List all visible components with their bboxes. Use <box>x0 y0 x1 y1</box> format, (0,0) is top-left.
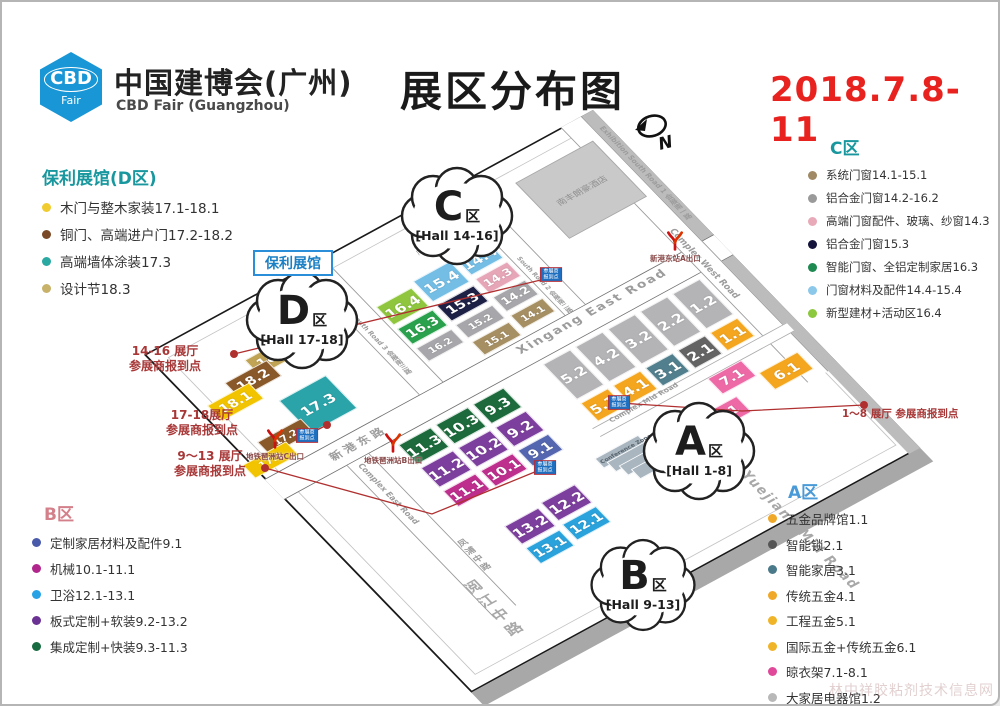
zone-cloud-b: B 区 [Hall 9-13] <box>585 536 701 634</box>
zone-suffix: 区 <box>312 314 327 328</box>
metro-icon <box>383 432 403 454</box>
legend-title: C区 <box>830 134 990 159</box>
zone-cloud-d: D 区 [Hall 17-18] <box>240 268 364 372</box>
legend-label: 高端门窗配件、玻璃、纱窗14.3 <box>826 213 990 229</box>
legend-dot-icon <box>768 514 777 523</box>
logo-fair-text: Fair <box>61 94 81 107</box>
legend-item: 智能门窗、全铝定制家居16.3 <box>808 259 990 275</box>
legend-item: 工程五金5.1 <box>768 611 916 630</box>
anno-line: 参展商报到点 <box>112 423 292 438</box>
zone-letter: D <box>277 293 310 329</box>
zone-suffix: 区 <box>465 210 480 224</box>
legend-item: 门窗材料及配件14.4-15.4 <box>808 282 990 298</box>
metro-exit-label: 新港东站A出口 <box>650 253 701 264</box>
metro-icon <box>665 230 685 252</box>
legend-title: A区 <box>788 478 916 503</box>
checkin-note-17-18: 17-18展厅 参展商报到点 <box>112 408 292 438</box>
legend-item: 晾衣架7.1-8.1 <box>768 662 916 681</box>
legend-label: 门窗材料及配件14.4-15.4 <box>826 282 962 298</box>
metro-exit-label: 地铁琶洲站B出口 <box>364 455 422 466</box>
legend-item: 系统门窗14.1-15.1 <box>808 167 990 183</box>
legend-item: 五金品牌馆1.1 <box>768 509 916 528</box>
legend-dot-icon <box>32 538 41 547</box>
legend-label: 智能家居3.1 <box>786 560 856 579</box>
legend-dot-icon <box>808 240 817 249</box>
legend-label: 高端墙体涂装17.3 <box>60 251 171 271</box>
anno-line: 参展商报到点 <box>90 359 240 374</box>
legend-item: 定制家居材料及配件9.1 <box>32 533 188 552</box>
legend-dot-icon <box>768 540 777 549</box>
north-compass-icon: N <box>632 112 684 158</box>
legend-dot-icon <box>32 590 41 599</box>
zone-hall-range: [Hall 14-16] <box>415 228 498 243</box>
anno-line: 参展商报到点 <box>120 464 300 479</box>
poster: CBD Fair 中国建博会(广州) CBD Fair (Guangzhou) … <box>0 0 1000 706</box>
legend-item: 机械10.1-11.1 <box>32 559 188 578</box>
legend-item: 智能家居3.1 <box>768 560 916 579</box>
legend-dot-icon <box>808 286 817 295</box>
legend-label: 机械10.1-11.1 <box>50 559 135 578</box>
legend-dot-icon <box>32 564 41 573</box>
zone-letter: C <box>434 189 463 225</box>
anno-line: 17-18展厅 <box>112 408 292 423</box>
legend-zone-c: C区 系统门窗14.1-15.1铝合金门窗14.2-16.2高端门窗配件、玻璃、… <box>808 134 990 328</box>
legend-label: 卫浴12.1-13.1 <box>50 585 135 604</box>
legend-items: 定制家居材料及配件9.1机械10.1-11.1卫浴12.1-13.1板式定制+软… <box>32 533 188 656</box>
legend-dot-icon <box>42 230 51 239</box>
badge-text: 报到点 <box>537 468 552 474</box>
poly-pavilion-badge: 保利展馆 <box>253 250 333 276</box>
legend-label: 工程五金5.1 <box>786 611 856 630</box>
legend-dot-icon <box>768 565 777 574</box>
legend-dot-icon <box>42 203 51 212</box>
legend-dot-icon <box>808 171 817 180</box>
legend-label: 铝合金门窗15.3 <box>826 236 909 252</box>
checkin-note-1-8: 1～8 展厅 参展商报到点 <box>842 408 958 421</box>
checkin-note-14-16: 14-16 展厅 参展商报到点 <box>90 344 240 374</box>
legend-dot-icon <box>808 194 817 203</box>
registration-badge: 参展商 报到点 <box>540 267 562 282</box>
legend-label: 板式定制+软装9.2-13.2 <box>50 611 188 630</box>
legend-item: 设计节18.3 <box>42 278 233 298</box>
legend-dot-icon <box>808 309 817 318</box>
legend-dot-icon <box>768 667 777 676</box>
title-chinese: 中国建博会(广州) <box>114 60 353 102</box>
legend-label: 设计节18.3 <box>60 278 131 298</box>
legend-dot-icon <box>42 257 51 266</box>
legend-dot-icon <box>808 263 817 272</box>
legend-label: 木门与整木家装17.1-18.1 <box>60 197 220 217</box>
legend-label: 系统门窗14.1-15.1 <box>826 167 927 183</box>
legend-dot-icon <box>768 616 777 625</box>
zone-cloud-a: A 区 [Hall 1-8] <box>637 399 761 503</box>
legend-label: 智能锁2.1 <box>786 535 843 554</box>
legend-title: B区 <box>44 500 188 525</box>
legend-label: 国际五金+传统五金6.1 <box>786 637 916 656</box>
legend-dot-icon <box>42 284 51 293</box>
legend-dot-icon <box>32 616 41 625</box>
badge-text: 报到点 <box>543 275 558 281</box>
metro-exit-xingangdong-a: 新港东站A出口 <box>650 230 701 264</box>
legend-item: 传统五金4.1 <box>768 586 916 605</box>
legend-item: 卫浴12.1-13.1 <box>32 585 188 604</box>
legend-item: 智能锁2.1 <box>768 535 916 554</box>
legend-label: 铜门、高端进户门17.2-18.2 <box>60 224 233 244</box>
zone-hall-range: [Hall 17-18] <box>260 332 343 347</box>
zone-letter: B <box>619 558 650 594</box>
legend-zone-b: B区 定制家居材料及配件9.1机械10.1-11.1卫浴12.1-13.1板式定… <box>32 500 188 663</box>
zone-cloud-c: C 区 [Hall 14-16] <box>395 164 519 268</box>
zone-suffix: 区 <box>652 579 667 593</box>
legend-items: 五金品牌馆1.1智能锁2.1智能家居3.1传统五金4.1工程五金5.1国际五金+… <box>768 509 916 706</box>
cbd-fair-logo: CBD Fair <box>40 52 102 122</box>
legend-label: 新型建材+活动区16.4 <box>826 305 942 321</box>
zone-hall-range: [Hall 1-8] <box>666 463 732 478</box>
legend-label: 集成定制+快装9.3-11.3 <box>50 637 188 656</box>
legend-items: 木门与整木家装17.1-18.1铜门、高端进户门17.2-18.2高端墙体涂装1… <box>42 197 233 298</box>
anno-line: 14-16 展厅 <box>90 344 240 359</box>
logo-cbd-text: CBD <box>44 67 98 92</box>
legend-poly-d: 保利展馆(D区) 木门与整木家装17.1-18.1铜门、高端进户门17.2-18… <box>42 164 233 305</box>
legend-item: 高端门窗配件、玻璃、纱窗14.3 <box>808 213 990 229</box>
legend-item: 木门与整木家装17.1-18.1 <box>42 197 233 217</box>
legend-item: 高端墙体涂装17.3 <box>42 251 233 271</box>
legend-item: 集成定制+快装9.3-11.3 <box>32 637 188 656</box>
registration-badge: 参展商 报到点 <box>296 428 318 443</box>
zone-letter: A <box>675 424 706 460</box>
checkin-note-9-13: 9～13 展厅 参展商报到点 <box>120 449 300 479</box>
legend-items: 系统门窗14.1-15.1铝合金门窗14.2-16.2高端门窗配件、玻璃、纱窗1… <box>808 167 990 321</box>
badge-text: 报到点 <box>611 403 626 409</box>
legend-item: 板式定制+软装9.2-13.2 <box>32 611 188 630</box>
anno-line: 1～8 展厅 参展商报到点 <box>842 408 958 421</box>
legend-dot-icon <box>808 217 817 226</box>
legend-item: 新型建材+活动区16.4 <box>808 305 990 321</box>
legend-dot-icon <box>768 693 777 702</box>
legend-label: 晾衣架7.1-8.1 <box>786 662 868 681</box>
registration-badge: 参展商 报到点 <box>608 395 630 410</box>
anno-line: 9～13 展厅 <box>120 449 300 464</box>
zone-hall-range: [Hall 9-13] <box>606 597 681 612</box>
legend-item: 铝合金门窗14.2-16.2 <box>808 190 990 206</box>
legend-label: 传统五金4.1 <box>786 586 856 605</box>
legend-label: 五金品牌馆1.1 <box>786 509 868 528</box>
legend-label: 智能门窗、全铝定制家居16.3 <box>826 259 978 275</box>
registration-badge: 参展商 报到点 <box>534 460 556 475</box>
legend-title: 保利展馆(D区) <box>42 164 233 189</box>
legend-dot-icon <box>768 642 777 651</box>
svg-text:N: N <box>656 132 675 155</box>
zone-suffix: 区 <box>708 445 723 459</box>
legend-item: 国际五金+传统五金6.1 <box>768 637 916 656</box>
title-english: CBD Fair (Guangzhou) <box>116 98 290 114</box>
legend-dot-icon <box>32 642 41 651</box>
legend-item: 铝合金门窗15.3 <box>808 236 990 252</box>
badge-text: 报到点 <box>299 436 314 442</box>
watermark: 林中祥胶粘剂技术信息网 <box>829 680 994 700</box>
legend-zone-a: A区 五金品牌馆1.1智能锁2.1智能家居3.1传统五金4.1工程五金5.1国际… <box>768 478 916 706</box>
legend-label: 定制家居材料及配件9.1 <box>50 533 182 552</box>
metro-exit-pazhou-b: 地铁琶洲站B出口 <box>364 432 422 466</box>
legend-item: 铜门、高端进户门17.2-18.2 <box>42 224 233 244</box>
legend-label: 铝合金门窗14.2-16.2 <box>826 190 939 206</box>
legend-dot-icon <box>768 591 777 600</box>
